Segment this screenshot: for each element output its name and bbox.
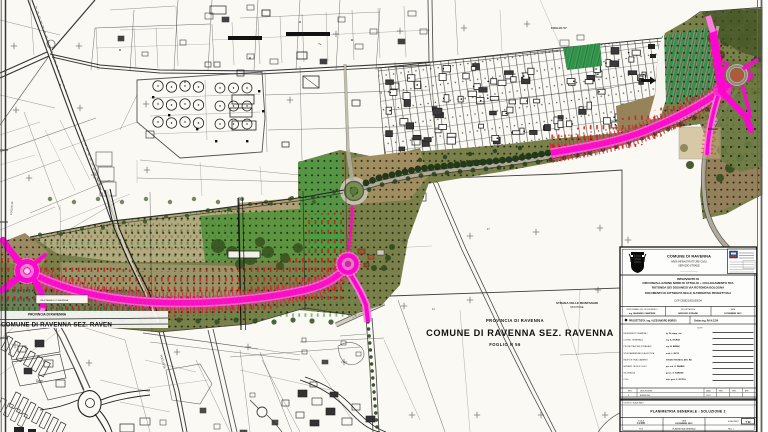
svg-text:dott. geol. F. VISTOLI: dott. geol. F. VISTOLI xyxy=(666,378,686,381)
svg-text:VER.: VER. xyxy=(732,391,737,393)
svg-text:ing. MASSIMO CAMPRINI: ing. MASSIMO CAMPRINI xyxy=(629,312,656,315)
svg-text:DICEMBRE 2021: DICEMBRE 2021 xyxy=(675,423,693,425)
svg-text:CUP C65E21000130004: CUP C65E21000130004 xyxy=(674,300,702,303)
svg-text:per. ind. G. FABBRI: per. ind. G. FABBRI xyxy=(666,365,685,368)
svg-text:COLL.: COLL. xyxy=(624,379,630,381)
svg-text:PROVINCIA DI RAVENNA: PROVINCIA DI RAVENNA xyxy=(486,318,544,323)
svg-text:COMUNE DI RAVENNA: COMUNE DI RAVENNA xyxy=(667,254,711,259)
svg-text:PLANIMETRIA GENERALE: PLANIMETRIA GENERALE xyxy=(672,428,696,431)
svg-text:FOGLIO 57: FOGLIO 57 xyxy=(551,26,567,30)
svg-text:RILIEVI E TRACCIAMENTI: RILIEVI E TRACCIAMENTI xyxy=(624,358,649,361)
svg-text:DESCRIZIONE: DESCRIZIONE xyxy=(640,391,653,393)
svg-text:T 02: T 02 xyxy=(745,420,751,424)
svg-text:AREA INFRASTRUTTURE CIVILI: AREA INFRASTRUTTURE CIVILI xyxy=(671,261,707,264)
svg-text:Dare: Dare xyxy=(36,379,43,383)
svg-text:SICUREZZA: SICUREZZA xyxy=(624,372,636,375)
svg-text:Ordine ing. RA N.1234: Ordine ing. RA N.1234 xyxy=(694,319,719,322)
svg-text:SERVIZIO STRADE: SERVIZIO STRADE xyxy=(678,265,700,268)
svg-text:DOCUMENTO DI FATTIBILITA DELLE: DOCUMENTO DI FATTIBILITA DELLE ALTERNATI… xyxy=(645,291,731,295)
svg-text:COORD. GENERALE: COORD. GENERALE xyxy=(624,339,644,342)
svg-text:~: ~ xyxy=(318,42,322,48)
svg-text:EMISSIONE: EMISSIONE xyxy=(640,395,651,397)
svg-text:_____________: _____________ xyxy=(679,269,698,272)
svg-text:FOGLIO: FOGLIO xyxy=(708,127,718,131)
svg-text:ing. M. BENINI: ing. M. BENINI xyxy=(666,346,680,348)
svg-text:STUDIO TECNICO ASS. RA: STUDIO TECNICO ASS. RA xyxy=(666,358,692,361)
svg-text:PROGETTAZIONE STRADALE: PROGETTAZIONE STRADALE xyxy=(624,345,653,348)
svg-text:STUDI AMBIENTALI E ACUSTICA: STUDI AMBIENTALI E ACUSTICA xyxy=(624,352,655,355)
svg-text:SERVIZIO STRADE: SERVIZIO STRADE xyxy=(678,312,698,315)
svg-text:PROGETTAZIONE: PROGETTAZIONE xyxy=(681,308,696,311)
svg-text:DATA: DATA xyxy=(706,390,711,393)
svg-text:ing. A. MORIGI: ing. A. MORIGI xyxy=(666,339,680,342)
svg-text:MONTONE: MONTONE xyxy=(570,305,583,309)
svg-text:OGGETTO ELABORATO: OGGETTO ELABORATO xyxy=(624,402,645,405)
svg-text:ROTONDA DEI DOSANESI VIA ROTON: ROTONDA DEI DOSANESI VIA ROTONDA BOLOGNA xyxy=(652,285,725,289)
svg-text:IMPIANTI TECNOLOGICI: IMPIANTI TECNOLOGICI xyxy=(624,365,647,368)
svg-text:STRADA CELLE MONTANARI: STRADA CELLE MONTANARI xyxy=(556,301,598,305)
svg-text:0: 0 xyxy=(628,395,629,397)
svg-text:PROVINCIA DI RAVENNA: PROVINCIA DI RAVENNA xyxy=(28,313,67,317)
svg-text:FOGLIO N 56: FOGLIO N 56 xyxy=(489,342,521,347)
svg-text:12/21: 12/21 xyxy=(706,395,711,397)
svg-text:RED.: RED. xyxy=(719,391,724,393)
svg-text:APP.: APP. xyxy=(745,390,749,393)
svg-text:1:2.000: 1:2.000 xyxy=(637,423,646,425)
svg-text:PROGETTISTA: ing. ALESSANDRO M: PROGETTISTA: ing. ALESSANDRO MORIGI xyxy=(629,319,677,322)
svg-text:PLANIMETRIA GENERALE - SOLUZIO: PLANIMETRIA GENERALE - SOLUZIONE 2 xyxy=(650,410,725,414)
svg-text:COMUNE DI RAVENNA SEZ. RAVENNA: COMUNE DI RAVENNA SEZ. RAVENNA xyxy=(426,328,614,338)
svg-text:fg. 56 mapp. vari: fg. 56 mapp. vari xyxy=(666,333,682,335)
svg-text:RIFERIMENTI CATASTALI: RIFERIMENTI CATASTALI xyxy=(624,332,648,335)
svg-text:geom. S. GARDINI: geom. S. GARDINI xyxy=(666,372,684,375)
svg-text:VIA STRADELLO RAVENNA: VIA STRADELLO RAVENNA xyxy=(40,299,69,302)
svg-text:PAG. 1: PAG. 1 xyxy=(728,428,734,431)
svg-text:ELABORATO: ELABORATO xyxy=(728,420,739,423)
svg-text:NOTE: NOTE xyxy=(697,328,703,330)
svg-text:arch. L. RICCI: arch. L. RICCI xyxy=(666,353,680,355)
svg-text:RESPONSABILE DEL PROCEDIMENTO: RESPONSABILE DEL PROCEDIMENTO xyxy=(627,308,659,311)
svg-text:DICEMBRE 2021: DICEMBRE 2021 xyxy=(724,313,742,315)
